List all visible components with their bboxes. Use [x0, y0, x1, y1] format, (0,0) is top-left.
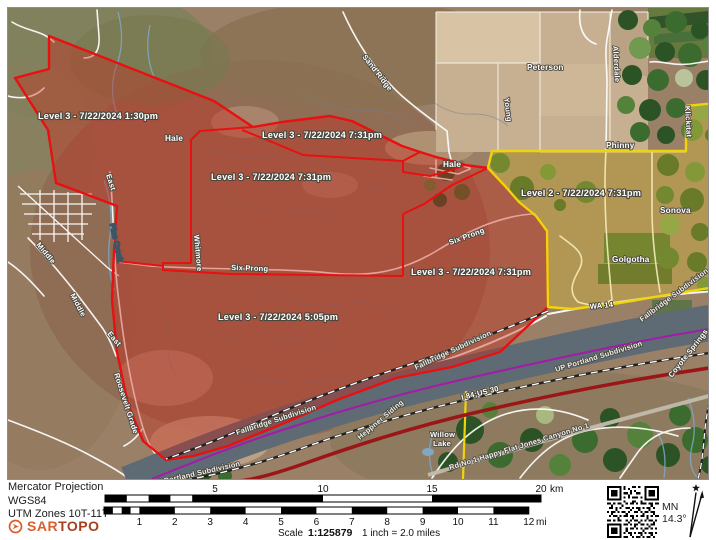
mi-tick-3: 3 [207, 517, 213, 528]
magnetic-north-arrow-icon [700, 491, 704, 499]
mi-tick-9: 9 [420, 517, 426, 528]
zone-label-central: Level 3 - 7/22/2024 7:31pm [211, 172, 331, 182]
place-sonova: Sonova [660, 206, 691, 215]
map-metadata: Mercator Projection WGS84 UTM Zones 10T-… [8, 481, 109, 522]
true-north-line [690, 493, 696, 538]
qr-code [607, 486, 659, 538]
mi-tick-4: 4 [243, 517, 249, 528]
mi-tick-5: 5 [278, 517, 284, 528]
mi-tick-1: 1 [137, 517, 143, 528]
declination-abbr: MN [662, 502, 687, 514]
mi-tick-8: 8 [384, 517, 390, 528]
zone-label-north: Level 3 - 7/22/2024 7:31pm [262, 130, 382, 140]
mi-tick-12: 12 [523, 517, 535, 528]
zone-label-east: Level 3 - 7/22/2024 7:31pm [411, 267, 531, 277]
scale-bars: 5 10 15 20 km 1 2 3 4 5 6 7 8 9 10 11 12… [95, 478, 570, 540]
magnetic-north-line [690, 494, 702, 537]
scale-bar-km: 5 10 15 20 km [105, 484, 563, 502]
logo-sar: SAR [27, 518, 58, 534]
km-unit: km [550, 484, 563, 495]
place-golgotha: Golgotha [612, 255, 650, 264]
place-hale-w: Hale [165, 134, 183, 143]
place-willow-lake-2: Lake [433, 439, 451, 448]
mi-unit: mi [536, 517, 547, 528]
mi-tick-2: 2 [172, 517, 178, 528]
map-export: Level 3 - 7/22/2024 1:30pm Level 3 - 7/2… [8, 8, 708, 479]
sartopo-logo: SARTOPO [8, 518, 99, 534]
declination-text: MN 14.3° [662, 502, 687, 525]
scale-bar-mi: 1 2 3 4 5 6 7 8 9 10 11 12 mi [104, 507, 547, 528]
place-hale-e: Hale [443, 160, 461, 169]
place-peterson: Peterson [527, 63, 564, 72]
place-willow-lake-1: Willow [430, 430, 455, 439]
road-alderdale: Alderdale [611, 46, 622, 83]
map-canvas: Level 3 - 7/22/2024 1:30pm Level 3 - 7/2… [8, 8, 708, 479]
declination-degrees: 14.3° [662, 514, 687, 526]
zone-label-nw: Level 3 - 7/22/2024 1:30pm [38, 111, 158, 121]
mi-tick-11: 11 [488, 517, 499, 528]
true-north-star-icon [692, 484, 700, 491]
road-klickitat: Klickitat [683, 106, 694, 138]
road-six-prong-w: Six Prong [231, 263, 269, 273]
datum-label: WGS84 [8, 495, 109, 509]
scale-label: Scale [278, 528, 303, 539]
km-tick-10: 10 [317, 484, 329, 495]
projection-label: Mercator Projection [8, 481, 109, 495]
zone-label-south: Level 3 - 7/22/2024 5:05pm [218, 312, 338, 322]
inch-equivalence: 1 inch = 2.0 miles [362, 528, 440, 539]
km-tick-15: 15 [426, 484, 438, 495]
sartopo-logo-text: SARTOPO [27, 518, 99, 534]
scale-value: 1:125879 [308, 527, 353, 539]
mi-tick-10: 10 [452, 517, 464, 528]
zone-label-level2: Level 2 - 7/22/2024 7:31pm [521, 188, 641, 198]
km-tick-20: 20 [535, 484, 547, 495]
declination-diagram [684, 483, 708, 539]
logo-topo: TOPO [58, 518, 99, 534]
km-tick-5: 5 [212, 484, 218, 495]
place-phinny: Phinny [606, 141, 635, 150]
sartopo-logo-icon [8, 519, 23, 534]
